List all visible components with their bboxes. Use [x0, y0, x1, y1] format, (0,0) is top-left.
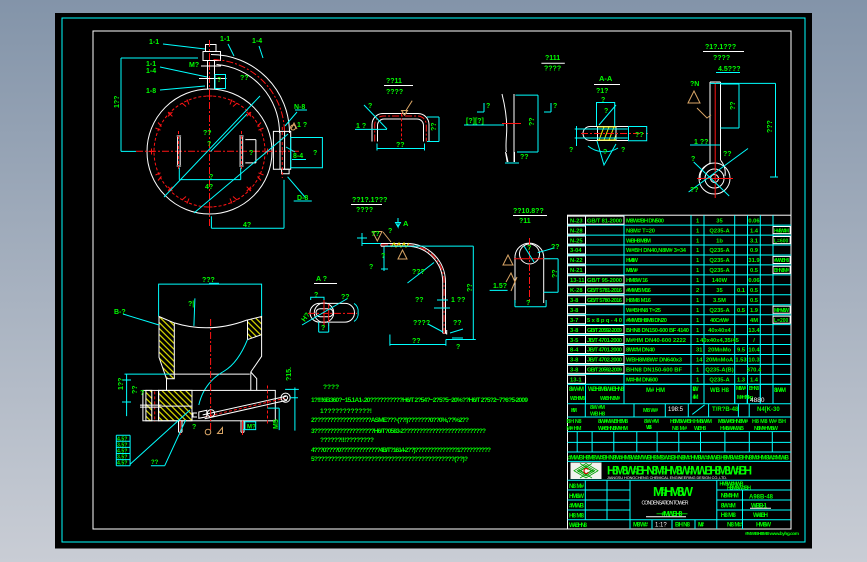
- svg-text:N-25: N-25: [570, 238, 583, 244]
- svg-text:?N: ?N: [690, 81, 699, 88]
- svg-text:8W: 8W: [693, 387, 699, 393]
- svg-text:?: ?: [486, 103, 490, 110]
- svg-text:4?: 4?: [243, 222, 251, 229]
- svg-text:?: ?: [217, 77, 221, 84]
- svg-text:WBH8M8W#BHN8: WBH8M8W#BHN8: [588, 387, 625, 393]
- svg-text:35: 35: [716, 218, 723, 224]
- svg-text:#MWB M16: #MWB M16: [626, 288, 652, 294]
- svg-text:8W #M: 8W #M: [721, 504, 736, 510]
- svg-text:M?: M?: [247, 425, 256, 431]
- svg-text:1????????????!: 1????????????!: [320, 408, 372, 415]
- svg-text:B-?: B-?: [114, 309, 126, 316]
- svg-text:BH N8: BH N8: [567, 419, 582, 425]
- svg-text:H8M8 M16: H8M8 M16: [626, 298, 652, 304]
- svg-text:N8M#HM: N8M#HM: [721, 494, 739, 500]
- svg-text:HM 8W: HM 8W: [756, 523, 771, 529]
- svg-text:N8 M#: N8 M#: [727, 523, 743, 529]
- svg-text:M#HM DN40-600 2222: M#HM DN40-600 2222: [626, 338, 686, 344]
- svg-text:WBH8M8W# DN640x3: WBH8M8W# DN640x3: [626, 358, 683, 364]
- svg-text:GB/T 5780-2016: GB/T 5780-2016: [587, 298, 623, 304]
- svg-text:Q235-A: Q235-A: [709, 258, 730, 264]
- svg-text:8W #M: 8W #M: [569, 387, 584, 393]
- svg-text:1 ?: 1 ?: [356, 123, 366, 130]
- svg-text:HM 8W: HM 8W: [569, 494, 584, 500]
- svg-text:1-1: 1-1: [149, 39, 159, 46]
- svg-text:???: ???: [767, 120, 774, 133]
- svg-text:HM8W 16: HM8W 16: [626, 278, 649, 284]
- svg-text:?: ?: [527, 245, 531, 252]
- svg-text:??: ??: [203, 130, 212, 137]
- svg-text:1??: 1??: [114, 96, 121, 108]
- svg-text:GB/T 81-2000: GB/T 81-2000: [587, 218, 622, 224]
- svg-text:??: ??: [635, 132, 644, 139]
- svg-text:13-1: 13-1: [570, 378, 582, 384]
- svg-text:1-8: 1-8: [146, 88, 156, 95]
- svg-text:JB/T 4701-2000: JB/T 4701-2000: [587, 348, 622, 354]
- svg-text:?: ?: [209, 174, 213, 181]
- svg-text:40x40x4: 40x40x4: [708, 328, 731, 334]
- svg-text:M# HM: M# HM: [646, 388, 665, 394]
- svg-text:3-8: 3-8: [570, 328, 579, 334]
- svg-text:W#BHN8 T=25: W#BHN8 T=25: [626, 308, 662, 314]
- svg-text:4?: 4?: [205, 184, 213, 191]
- svg-text:??: ??: [132, 385, 139, 394]
- svg-text:N8 M#: N8 M#: [672, 426, 687, 432]
- svg-text:Q235-A: Q235-A: [709, 308, 730, 314]
- svg-text:D-8: D-8: [297, 195, 308, 202]
- svg-text:W#BHN8: W#BHN8: [569, 523, 588, 529]
- svg-text:Q235-A: Q235-A: [709, 248, 730, 254]
- svg-text:A: A: [403, 219, 409, 228]
- svg-text:M#HM8W: M#HM8W: [653, 484, 694, 499]
- svg-text:40x40x4,35/45: 40x40x4,35/45: [700, 338, 739, 344]
- svg-text:4.5?: 4.5?: [117, 449, 127, 455]
- svg-text:4???0????0?????????????4B/T?16: 4???0????0?????????????4B/T?1614-2??)???…: [311, 447, 491, 454]
- svg-text:35: 35: [716, 288, 723, 294]
- svg-text:??: ??: [396, 142, 405, 149]
- svg-text:WBH8M8: WBH8M8: [570, 396, 585, 402]
- svg-text:2??????????????????ASME???-(??: 2??????????????????ASME???-(??!)???????0…: [311, 417, 469, 424]
- svg-text:M8W#: M8W#: [626, 268, 639, 274]
- svg-text:0.5: 0.5: [750, 298, 759, 304]
- svg-text:BHN8 DN150-600 BF 4140: BHN8 DN150-600 BF 4140: [626, 328, 689, 334]
- svg-text:5?????????????????????????????: 5???????????????????????????????????????…: [311, 456, 468, 463]
- svg-text:W#BHN8M#: W#BHN8M#: [600, 396, 620, 402]
- svg-text:M8W#BH DN500: M8W#BH DN500: [626, 218, 664, 224]
- svg-text:M8W#BHN8M#: M8W#BHN8M#: [718, 419, 748, 425]
- svg-text:?15.: ?15.: [286, 367, 293, 381]
- svg-text:N8 M#: N8 M#: [569, 484, 585, 490]
- svg-text:8W#M DN40: 8W#M DN40: [626, 348, 655, 354]
- svg-text:??: ??: [552, 269, 559, 278]
- svg-text:??: ??: [730, 101, 737, 110]
- svg-text:0.5: 0.5: [737, 308, 746, 314]
- svg-text:1b: 1b: [716, 238, 723, 244]
- svg-text:3.5?: 3.5?: [117, 442, 127, 448]
- svg-text:HM8W#MWB: HM8W#MWB: [720, 426, 744, 432]
- svg-text:HM: HM: [571, 408, 577, 414]
- svg-text:A-A: A-A: [599, 74, 613, 83]
- svg-text:M#: M#: [698, 523, 705, 529]
- svg-text:4880: 4880: [750, 397, 765, 404]
- svg-text:0.06: 0.06: [748, 278, 760, 284]
- svg-text:?: ?: [207, 141, 211, 148]
- svg-text:[?][?]: [?][?]: [466, 118, 484, 125]
- svg-text:0.9: 0.9: [750, 248, 759, 254]
- svg-text:#M: #M: [693, 395, 699, 401]
- svg-text:1-1: 1-1: [220, 36, 230, 43]
- svg-text:????: ????: [413, 320, 430, 327]
- svg-text:3-04: 3-04: [570, 248, 582, 254]
- svg-text:H8 M8: H8 M8: [721, 513, 737, 519]
- svg-text:??: ??: [690, 187, 699, 194]
- svg-text:??10.8??: ??10.8??: [513, 208, 544, 215]
- svg-text:140W: 140W: [712, 278, 728, 284]
- svg-text:?: ?: [192, 424, 196, 431]
- svg-text:?: ?: [368, 103, 372, 110]
- svg-text:1.4: 1.4: [750, 378, 759, 384]
- svg-text:#MWB H8M8 W#BH N8M#HM8W#M WBH8: #MWB H8M8 W#BH N8M#HM8W#M WBH8 M8.W#.BH …: [568, 456, 790, 462]
- svg-text:13-11: 13-11: [570, 278, 585, 284]
- svg-text:?|: ?|: [188, 301, 194, 308]
- svg-text:?: ?: [456, 344, 460, 351]
- svg-text:W#BH DN40,N8M# 3=34: W#BH DN40,N8M# 3=34: [626, 248, 687, 254]
- svg-text:N-22: N-22: [570, 258, 583, 264]
- svg-text:??: ??: [453, 320, 462, 327]
- svg-text:BH N8: BH N8: [675, 523, 691, 529]
- svg-text:10.3: 10.3: [748, 358, 760, 364]
- svg-text:1.3: 1.3: [737, 378, 746, 384]
- svg-text:Q235-A: Q235-A: [709, 228, 730, 234]
- svg-text:3-5: 3-5: [570, 338, 579, 344]
- svg-text:BHN8 DN150-600 BF: BHN8 DN150-600 BF: [626, 368, 682, 374]
- svg-text:M8 W#: M8 W#: [633, 523, 649, 529]
- svg-text:8-4: 8-4: [570, 348, 579, 354]
- svg-text:3.5?: 3.5?: [117, 455, 127, 461]
- svg-text:1:1?: 1:1?: [655, 523, 667, 529]
- svg-text:H8M8W#BH: H8M8W#BH: [670, 419, 694, 425]
- svg-text:?1?: ?1?: [596, 88, 608, 95]
- svg-text:?: ?: [314, 292, 318, 299]
- svg-text:??1?.1???: ??1?.1???: [352, 197, 387, 204]
- svg-text:N8M# T=20: N8M# T=20: [626, 228, 655, 234]
- svg-text:13.4: 13.4: [748, 328, 760, 334]
- svg-text:1 ?: 1 ?: [297, 122, 307, 129]
- svg-text:1-4: 1-4: [252, 38, 262, 45]
- svg-text:1.9: 1.9: [750, 308, 759, 314]
- svg-text:??: ??: [240, 75, 249, 82]
- svg-text:?: ?: [388, 228, 392, 235]
- svg-text:???: ???: [412, 269, 425, 276]
- svg-text:Q235-A: Q235-A: [709, 378, 730, 384]
- svg-text:4.5?: 4.5?: [117, 461, 127, 467]
- svg-text:H8 M8 W# BH: H8 M8 W# BH: [752, 419, 786, 425]
- svg-text:370.4: 370.4: [747, 368, 762, 374]
- svg-text:??: ??: [520, 154, 529, 161]
- svg-text:C: C: [583, 467, 589, 476]
- svg-text:?11: ?11: [519, 218, 531, 225]
- svg-text:1.53: 1.53: [735, 358, 747, 364]
- svg-text:?111: ?111: [545, 55, 560, 62]
- svg-text:?: ?: [553, 103, 557, 110]
- svg-text:#M WB: #M WB: [569, 504, 585, 510]
- svg-text:A98B-48: A98B-48: [749, 495, 774, 501]
- svg-text:H8M8W#BH: H8M8W#BH: [727, 486, 751, 492]
- svg-text:3.1: 3.1: [750, 238, 759, 244]
- svg-text:???: ???: [202, 277, 215, 284]
- svg-text:H8 M8: H8 M8: [569, 513, 585, 519]
- svg-text:?: ?: [381, 253, 385, 260]
- svg-text:?: ?: [691, 156, 695, 163]
- svg-text:31.9: 31.9: [748, 258, 760, 264]
- svg-text:40CrW#: 40CrW#: [710, 318, 730, 324]
- svg-text:N-23: N-23: [570, 218, 583, 224]
- svg-text:M?: M?: [189, 62, 199, 69]
- svg-text:N-21: N-21: [570, 268, 583, 274]
- svg-text:A ?: A ?: [316, 276, 327, 283]
- svg-text:K-28: K-28: [570, 288, 583, 294]
- svg-text:1 ??: 1 ??: [694, 139, 708, 146]
- svg-text:14: 14: [696, 358, 703, 364]
- svg-text:10.4: 10.4: [748, 348, 760, 354]
- svg-text:????: ????: [713, 55, 730, 62]
- svg-text:??: ??: [723, 151, 732, 158]
- svg-text:?: ?: [601, 97, 605, 104]
- svg-text:HM8W: HM8W: [626, 258, 639, 264]
- svg-text:3-8: 3-8: [570, 308, 579, 314]
- svg-text:?: ?: [569, 147, 573, 154]
- svg-text:31: 31: [696, 348, 703, 354]
- svg-text:N-28: N-28: [570, 228, 583, 234]
- svg-text:20MnMo: 20MnMo: [708, 348, 732, 354]
- svg-text:M5: M5: [273, 419, 280, 429]
- svg-text:?: ?: [621, 147, 625, 154]
- svg-text:W#1BH: W#1BH: [753, 513, 768, 519]
- svg-text:WBH8: WBH8: [694, 426, 706, 432]
- svg-text:WB H8: WB H8: [590, 412, 605, 418]
- svg-text:1??: 1??: [118, 378, 125, 390]
- svg-text:W#BHN8M#HM: W#BHN8M#HM: [598, 426, 628, 432]
- svg-text:?: ?: [321, 325, 325, 332]
- svg-text:198:5: 198:5: [668, 407, 684, 413]
- svg-text:?: ?: [604, 108, 608, 115]
- svg-text:?: ?: [313, 150, 317, 157]
- svg-text:0.5: 0.5: [750, 288, 759, 294]
- svg-text:1.5?: 1.5?: [493, 283, 507, 290]
- svg-text:N4[K-30: N4[K-30: [757, 407, 780, 413]
- svg-text:8W #M: 8W #M: [590, 405, 605, 411]
- svg-text:4M: 4M: [750, 318, 758, 324]
- svg-text:??11: ??11: [386, 78, 402, 85]
- svg-text:?: ?: [369, 264, 373, 271]
- svg-text:1 ??: 1 ??: [451, 297, 465, 304]
- svg-text:M8W#: M8W#: [736, 386, 746, 392]
- svg-text:JB/T 4701-2000: JB/T 4701-2000: [587, 338, 622, 344]
- svg-text:HM8W#M: HM8W#M: [694, 419, 712, 425]
- svg-text:?1?.1???: ?1?.1???: [705, 44, 736, 51]
- svg-text:3-8: 3-8: [570, 368, 579, 374]
- svg-text:4.5?: 4.5?: [117, 436, 127, 442]
- svg-text:????: ????: [356, 207, 373, 214]
- svg-text:??: ??: [529, 117, 536, 126]
- svg-text:GB/T 20592-2009: GB/T 20592-2009: [587, 368, 623, 374]
- svg-text:9.5: 9.5: [737, 348, 746, 354]
- svg-text:????: ????: [544, 66, 561, 73]
- svg-text:8W#M: 8W#M: [774, 388, 786, 394]
- svg-text:????: ????: [323, 384, 339, 391]
- svg-text:Q235-A(B): Q235-A(B): [705, 368, 733, 374]
- svg-text:1-4: 1-4: [146, 68, 156, 75]
- svg-text:M8 W#: M8 W#: [643, 408, 658, 414]
- svg-text:??????!!!????????: ??????!!!????????: [320, 437, 374, 444]
- svg-text:0.1: 0.1: [737, 288, 746, 294]
- svg-text:Q235-A: Q235-A: [709, 268, 730, 274]
- svg-text:??: ??: [341, 294, 350, 301]
- svg-text:CONDENSATION TOWER: CONDENSATION TOWER: [642, 501, 689, 507]
- svg-text:?: ?: [249, 150, 253, 157]
- svg-text:?: ?: [603, 149, 607, 156]
- svg-text:3-7: 3-7: [570, 318, 578, 324]
- svg-text:?: ?: [526, 300, 530, 307]
- svg-text:JIANGSU HONGCHENG CHEMICAL ENG: JIANGSU HONGCHENG CHEMICAL ENGINEERING D…: [607, 476, 727, 480]
- svg-text:8-4: 8-4: [293, 153, 303, 160]
- svg-text:??: ??: [412, 338, 421, 345]
- svg-text:?: ?: [140, 390, 144, 397]
- svg-text:WBH8 M8M: WBH8 M8M: [626, 238, 651, 244]
- svg-text:??: ??: [431, 122, 438, 131]
- svg-text:#MWBH8M8 www.byhg.com: #MWBH8M8 www.byhg.com: [745, 531, 799, 537]
- svg-text:3-8: 3-8: [570, 358, 579, 364]
- svg-text:1?!!!!6B360?~15.1A1-.20???????: 1?!!!!6B360?~15.1A1-.20??????????H6/T 2?…: [311, 397, 528, 404]
- svg-text:8W#MWBH8M8: 8W#MWBH8M8: [598, 419, 628, 425]
- svg-text:1-1: 1-1: [146, 61, 156, 68]
- svg-text:GB/T 5781-2016: GB/T 5781-2016: [587, 288, 623, 294]
- svg-text:M# HM: M# HM: [567, 426, 582, 432]
- svg-text:20MnMoA: 20MnMoA: [706, 358, 734, 364]
- svg-text:#MWBH8M8 DN20: #MWBH8M8 DN20: [626, 318, 667, 324]
- svg-text:WB: WB: [646, 425, 652, 431]
- svg-text:3-8: 3-8: [570, 298, 579, 304]
- svg-text:GB/T 20592-2009: GB/T 20592-2009: [587, 328, 623, 334]
- svg-text:1.4: 1.4: [750, 228, 759, 234]
- svg-text:??: ??: [151, 460, 159, 466]
- svg-text:3.5M: 3.5M: [713, 298, 726, 304]
- svg-text:4.5???: 4.5???: [718, 66, 741, 73]
- svg-text:??: ??: [415, 297, 424, 304]
- svg-text:BHN8: BHN8: [749, 386, 759, 392]
- svg-text:2: 2: [696, 288, 699, 294]
- svg-text:3???????????????????H6/T?0583-: 3???????????????????H6/T?0583-2?????????…: [311, 428, 486, 435]
- svg-text:0.06: 0.06: [748, 218, 760, 224]
- svg-text:N-8: N-8: [294, 104, 305, 111]
- svg-text:N8M#HM8W: N8M#HM8W: [754, 426, 779, 432]
- svg-text:M#HM DN600: M#HM DN600: [626, 378, 658, 384]
- svg-text:WB H8: WB H8: [710, 388, 730, 394]
- svg-text:??: ??: [551, 244, 560, 251]
- svg-text:??: ??: [467, 283, 474, 292]
- svg-text:????: ????: [386, 89, 403, 96]
- svg-text:GB/T 95-2000: GB/T 95-2000: [587, 278, 622, 284]
- svg-text:JB/T 4702-2000: JB/T 4702-2000: [587, 358, 622, 364]
- svg-text:??: ??: [371, 231, 380, 238]
- svg-text:T/R?B-48: T/R?B-48: [712, 407, 739, 413]
- svg-text:0.5: 0.5: [750, 268, 759, 274]
